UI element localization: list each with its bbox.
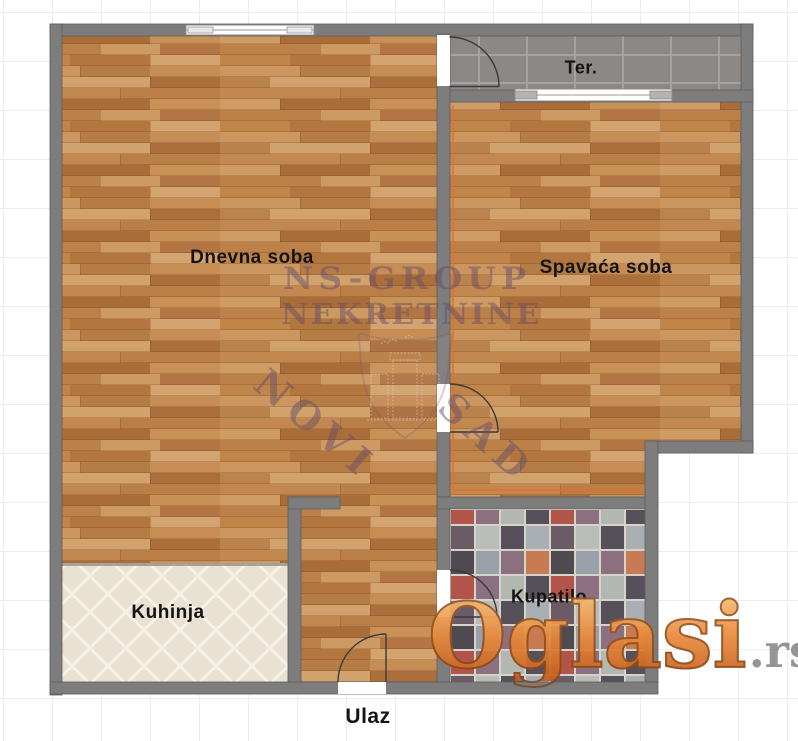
room-label-entrance: Ulaz: [345, 705, 390, 729]
wall-right: [741, 24, 753, 453]
wall-kitchen-right: [288, 497, 301, 682]
wall-top: [50, 24, 753, 36]
floor-plan-canvas: Dnevna soba Spavaća soba Kuhinja Kupatil…: [0, 0, 798, 741]
wall-hall-stub: [288, 497, 340, 509]
room-label-terrace: Ter.: [565, 58, 598, 79]
window-terrace: [515, 89, 672, 101]
watermark-agency-type: NEKRETNINE: [281, 297, 541, 331]
window-living-room: [186, 25, 314, 35]
brand-suffix: .rs: [749, 624, 798, 678]
watermark-agency-name: NS-GROUP: [283, 261, 531, 297]
brand-name: Oglasi: [428, 591, 747, 681]
wall-bedroom-bottom: [437, 497, 658, 509]
room-label-kitchen: Kuhinja: [131, 602, 204, 624]
wall-left: [50, 24, 62, 695]
brand-watermark: Oglasi .rs: [428, 591, 798, 681]
room-label-bedroom: Spavaća soba: [540, 257, 673, 279]
kitchen-boundary-line: [62, 563, 288, 566]
wall-bedroom-step: [647, 441, 753, 453]
